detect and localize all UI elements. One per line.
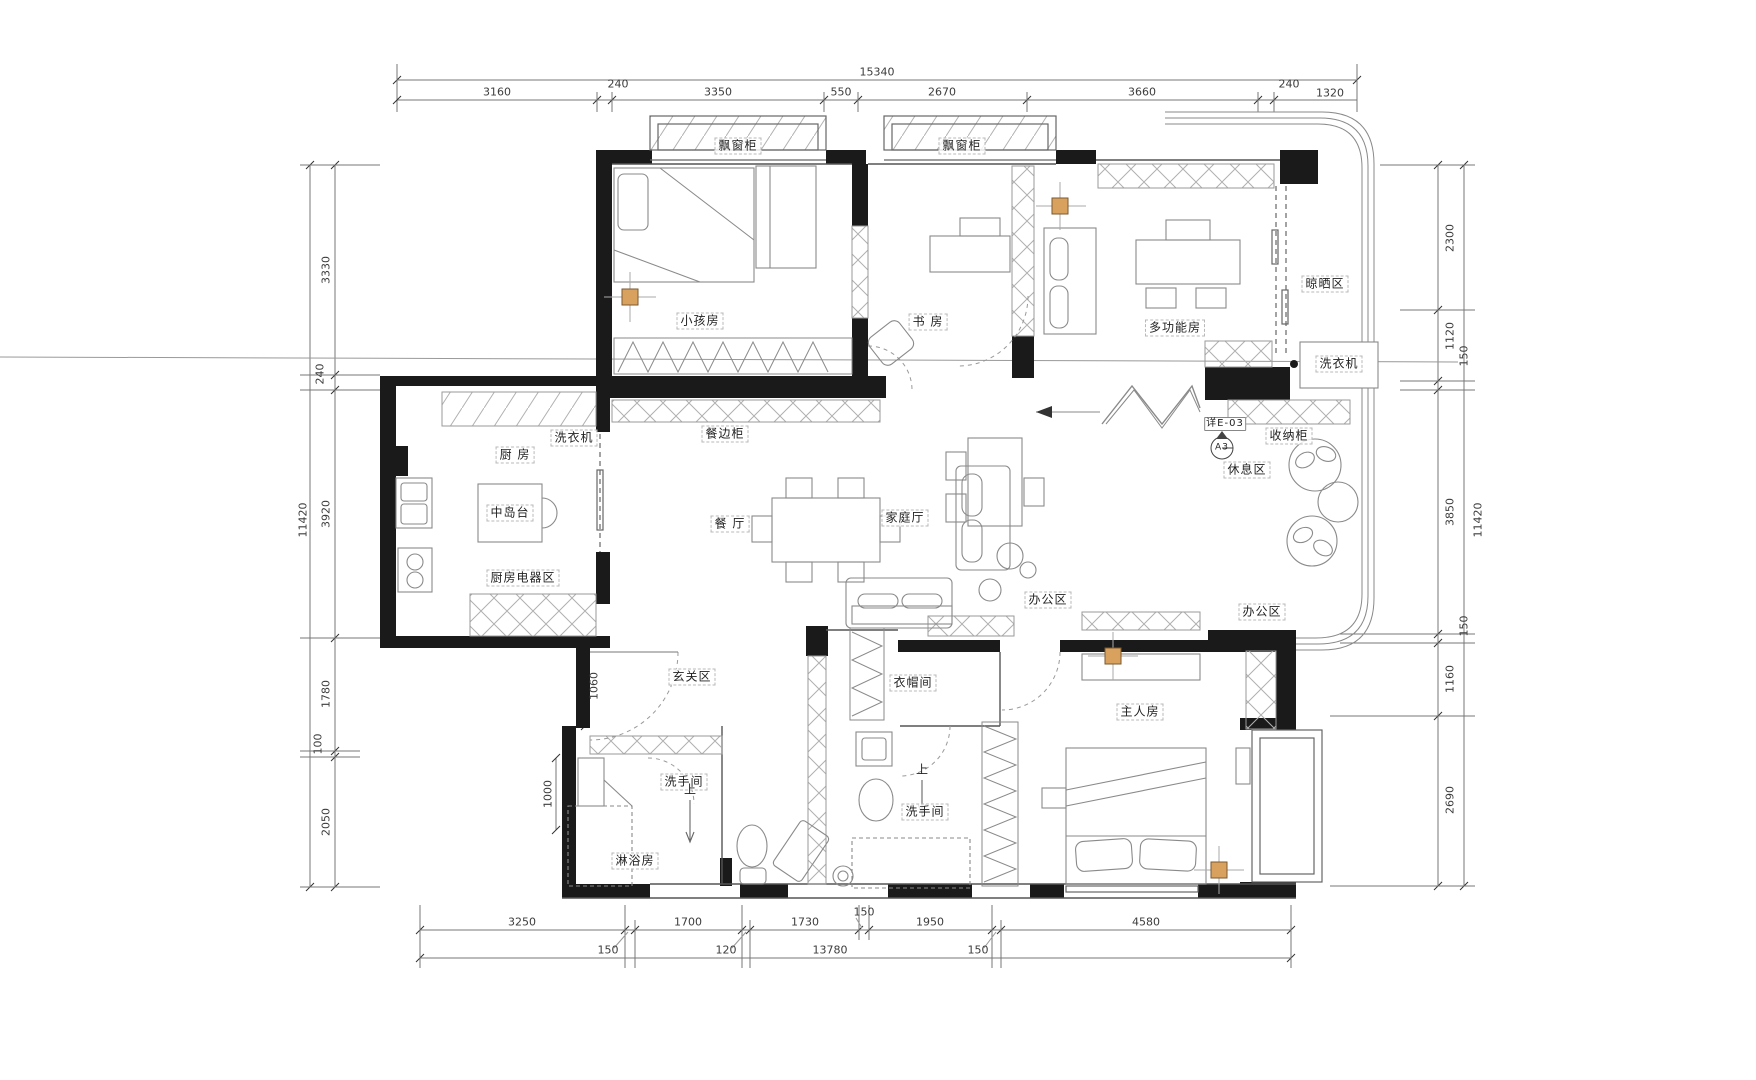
dim-left-1: 240 [314, 364, 327, 385]
dim-bottom-offset-2: 150 [968, 944, 989, 957]
label-office-right: 办公区 [1238, 604, 1285, 621]
dim-right-2: 150 [1458, 346, 1471, 367]
label-bay-cabinet-left: 飘窗柜 [714, 138, 761, 155]
label-dining: 餐 厅 [711, 516, 750, 533]
dim-bottom-2: 1730 [791, 916, 819, 929]
label-kitchen-appliance: 厨房电器区 [486, 570, 559, 587]
label-washer-balcony: 洗衣机 [1315, 356, 1362, 373]
dim-right-3: 3850 [1444, 498, 1457, 526]
dim-bottom-offset-1: 120 [716, 944, 737, 957]
dim-top-6: 240 [1279, 78, 1300, 91]
dim-top-4: 2670 [928, 86, 956, 99]
dim-bottom-total: 13780 [813, 944, 848, 957]
label-kids-room: 小孩房 [676, 313, 723, 330]
dim-top-1: 240 [608, 78, 629, 91]
floor-plan-drawing [0, 0, 1756, 1080]
label-detail-ref: 详E-03 [1204, 417, 1246, 431]
dim-bottom-1: 1700 [674, 916, 702, 929]
label-office-center: 办公区 [1024, 592, 1071, 609]
dim-inner-bath: 1000 [542, 780, 555, 808]
label-up-right: 上 [913, 763, 931, 778]
label-study: 书 房 [909, 314, 948, 331]
dim-bottom-0: 3250 [508, 916, 536, 929]
label-sideboard: 餐边柜 [701, 426, 748, 443]
dim-inner-hall: 1060 [588, 672, 601, 700]
label-entry: 玄关区 [668, 669, 715, 686]
dim-top-0: 3160 [483, 86, 511, 99]
dim-top-2: 3350 [704, 86, 732, 99]
floor-plan-canvas: 飘窗柜 飘窗柜 小孩房 书 房 多功能房 晾晒区 洗衣机 收纳柜 休息区 洗衣机… [0, 0, 1756, 1080]
dim-top-total: 15340 [860, 66, 895, 79]
label-drying-area: 晾晒区 [1301, 276, 1348, 293]
label-shower-room: 淋浴房 [611, 853, 658, 870]
label-detail-tag: A3 [1212, 441, 1232, 456]
dim-bottom-4: 1950 [916, 916, 944, 929]
dim-right-5: 1160 [1444, 665, 1457, 693]
label-multi-room: 多功能房 [1145, 320, 1205, 337]
label-rest-area: 休息区 [1223, 462, 1270, 479]
dim-bottom-3: 150 [854, 906, 875, 919]
walls [380, 150, 1318, 898]
label-washer-kitchen: 洗衣机 [550, 430, 597, 447]
label-up-left: 上 [681, 783, 699, 798]
dim-left-3: 1780 [320, 680, 333, 708]
label-cloakroom: 衣帽间 [889, 675, 936, 692]
dim-left-2: 3920 [320, 500, 333, 528]
label-island: 中岛台 [486, 505, 533, 522]
dim-right-total: 11420 [1472, 503, 1485, 538]
label-kitchen: 厨 房 [496, 447, 535, 464]
dim-bottom-offset-0: 150 [598, 944, 619, 957]
label-master-room: 主人房 [1116, 704, 1163, 721]
dim-left-total: 11420 [297, 503, 310, 538]
dim-bottom-5: 4580 [1132, 916, 1160, 929]
label-bay-cabinet-right: 飘窗柜 [938, 138, 985, 155]
dim-left-5: 2050 [320, 808, 333, 836]
label-bath-right: 洗手间 [901, 804, 948, 821]
dim-top-7: 1320 [1316, 87, 1344, 100]
dim-right-4: 150 [1458, 616, 1471, 637]
dim-right-1: 1120 [1444, 322, 1457, 350]
dim-top-3: 550 [831, 86, 852, 99]
label-storage-cabinet: 收纳柜 [1265, 428, 1312, 445]
dim-right-6: 2690 [1444, 786, 1457, 814]
dim-left-0: 3330 [320, 256, 333, 284]
dim-left-4: 100 [312, 734, 325, 755]
dim-right-0: 2300 [1444, 224, 1457, 252]
dim-top-5: 3660 [1128, 86, 1156, 99]
label-family-hall: 家庭厅 [881, 510, 928, 527]
